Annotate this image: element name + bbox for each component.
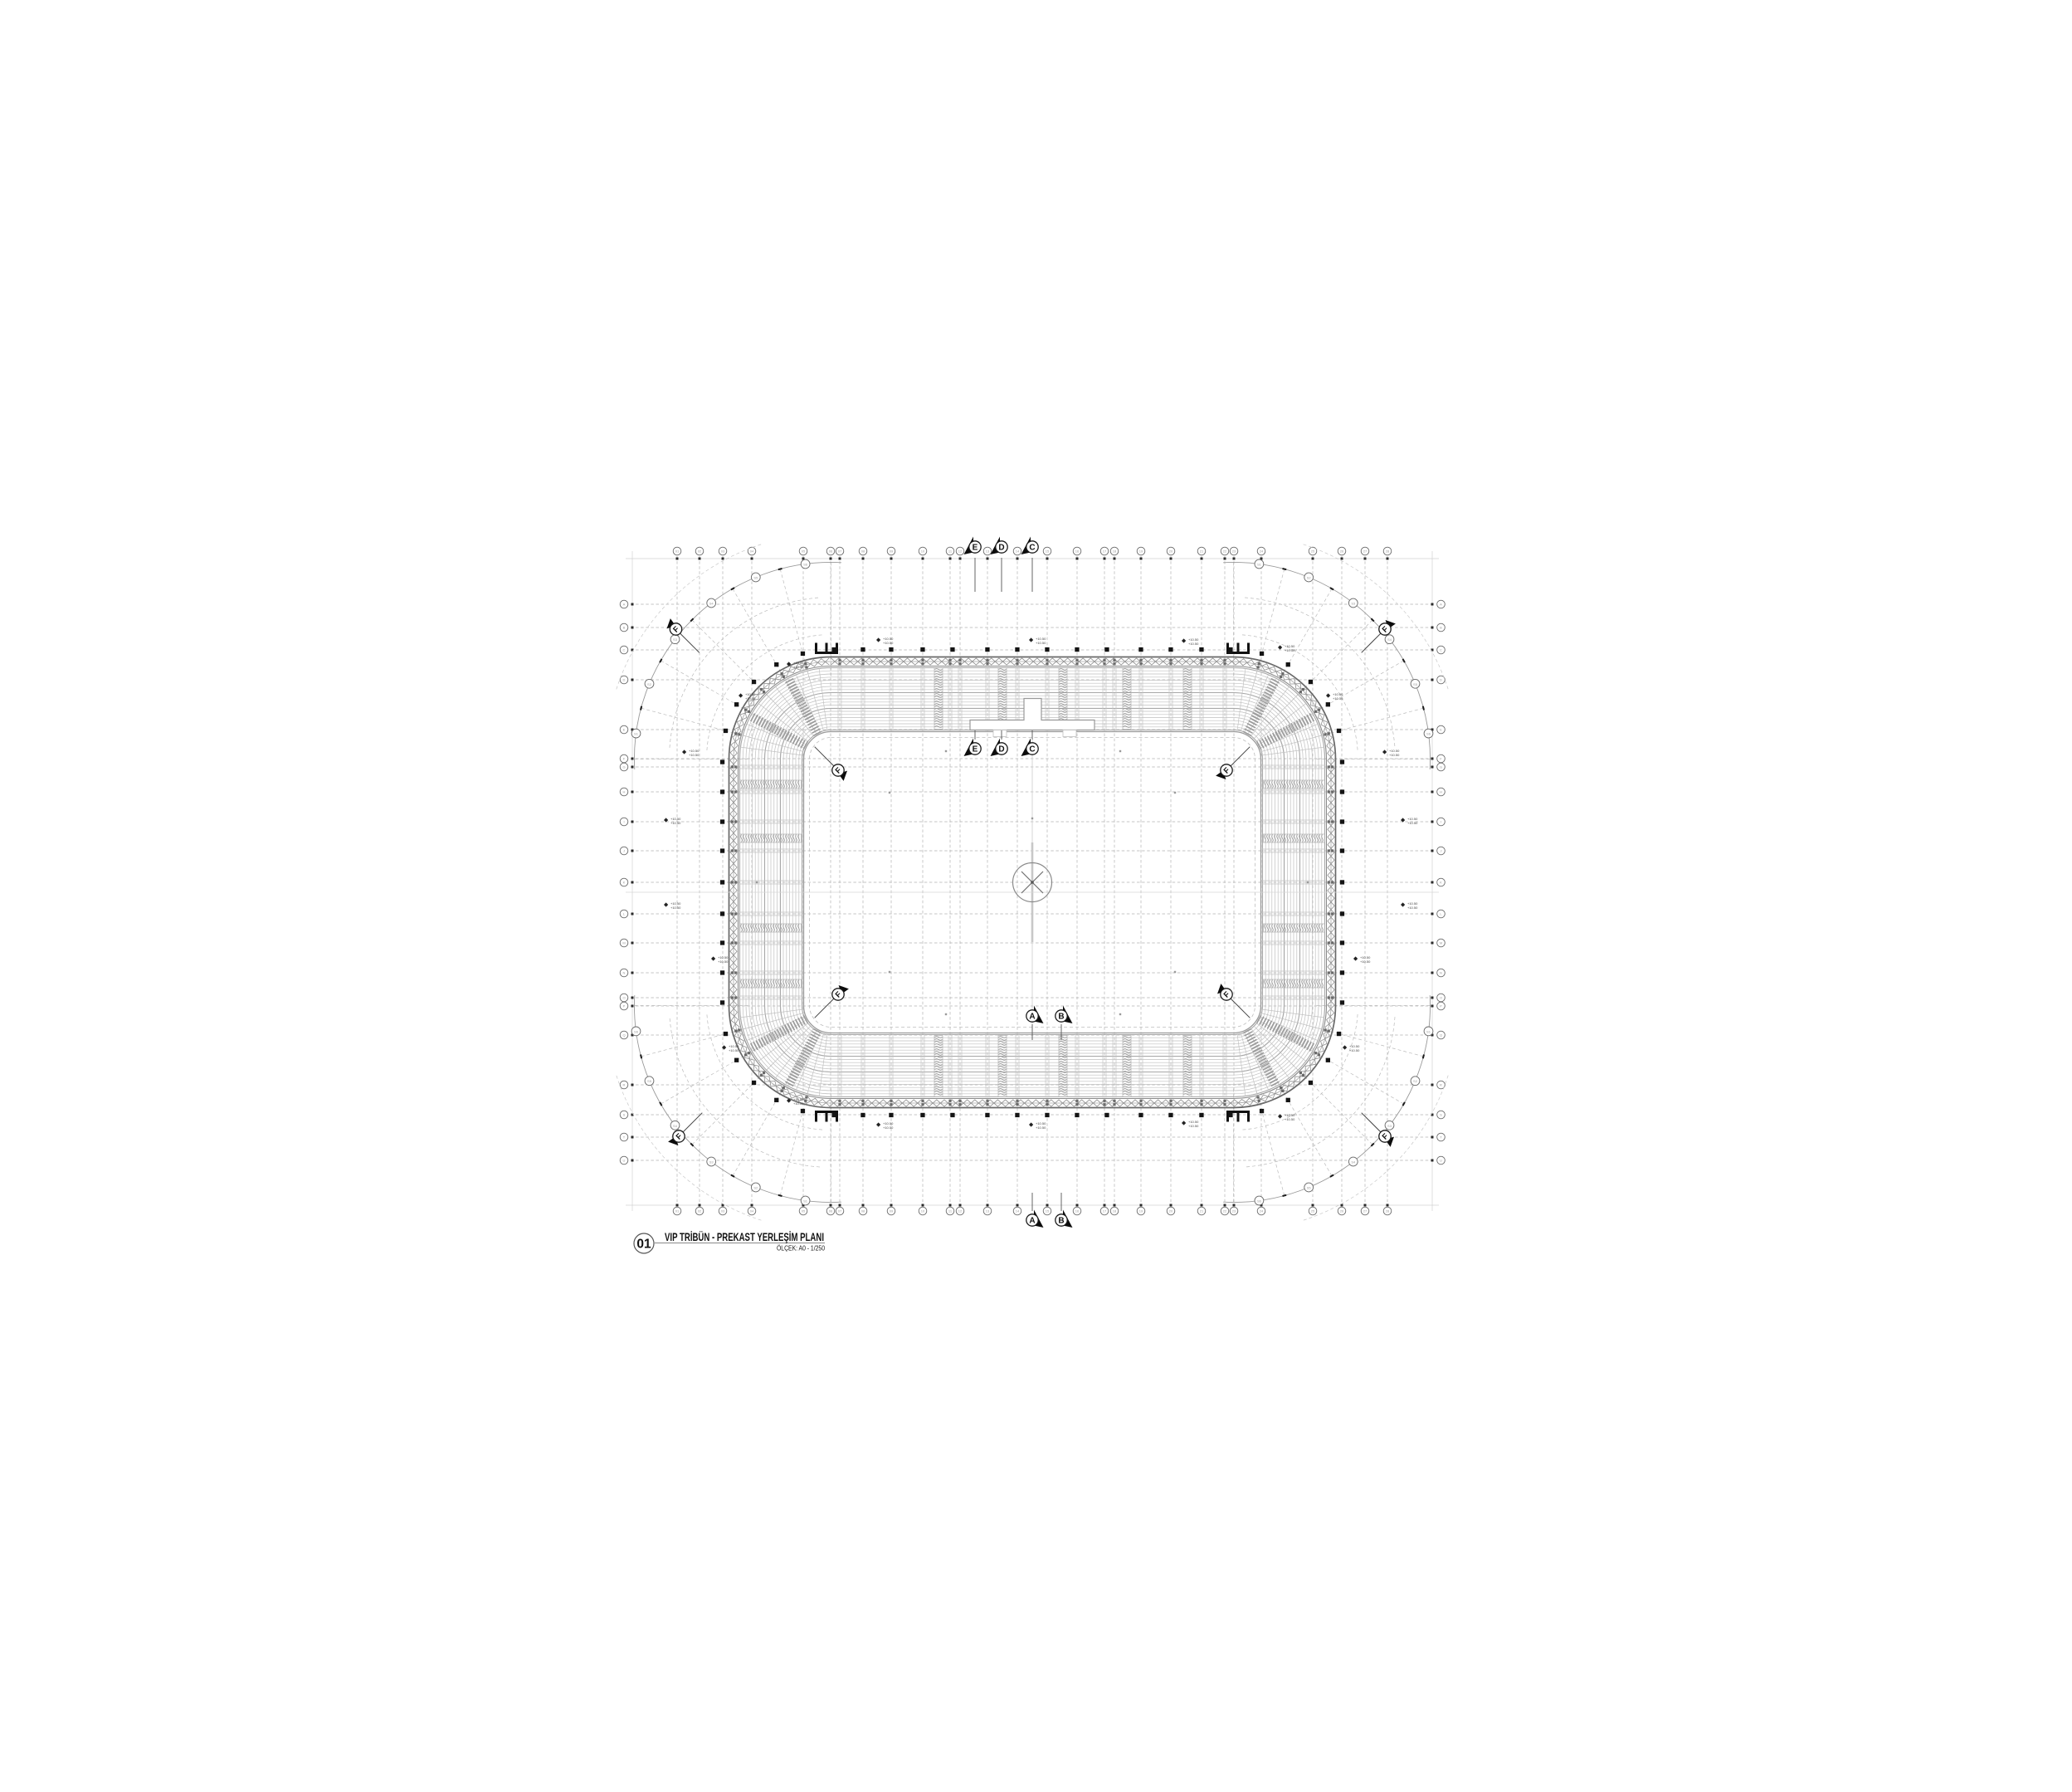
- svg-text:09: 09: [890, 549, 894, 554]
- svg-text:26: 26: [1340, 549, 1344, 554]
- svg-text:+10.50: +10.50: [670, 906, 681, 910]
- svg-text:R: R: [623, 1083, 626, 1087]
- svg-text:C: C: [1440, 648, 1442, 652]
- svg-text:+10.50: +10.50: [883, 641, 894, 645]
- svg-text:25: 25: [1311, 1209, 1315, 1213]
- svg-text:13: 13: [986, 549, 990, 554]
- svg-text:18: 18: [1113, 1209, 1117, 1213]
- svg-text:S: S: [1440, 1113, 1442, 1117]
- svg-text:M: M: [1440, 941, 1442, 945]
- svg-text:+10.50: +10.50: [718, 959, 729, 964]
- svg-text:H: H: [1440, 790, 1442, 794]
- svg-text:27: 27: [1363, 549, 1368, 554]
- svg-text:03: 03: [721, 1209, 725, 1213]
- svg-text:S1: S1: [803, 1199, 808, 1204]
- svg-text:S3: S3: [709, 1160, 714, 1165]
- svg-text:S5: S5: [753, 576, 758, 580]
- svg-text:S4: S4: [673, 1124, 678, 1128]
- svg-text:O: O: [622, 996, 625, 1000]
- svg-text:E: E: [623, 728, 626, 732]
- svg-text:02: 02: [698, 1209, 702, 1213]
- svg-text:07: 07: [838, 1209, 842, 1213]
- svg-text:+10.50: +10.50: [670, 821, 681, 825]
- svg-text:A: A: [623, 603, 626, 607]
- svg-text:07: 07: [838, 549, 842, 554]
- svg-text:G: G: [622, 765, 625, 769]
- svg-text:S5: S5: [647, 1079, 652, 1083]
- svg-text:14: 14: [1016, 549, 1020, 554]
- svg-text:28: 28: [1386, 1209, 1390, 1213]
- svg-text:J: J: [1441, 849, 1442, 853]
- svg-text:19: 19: [1139, 1209, 1143, 1213]
- svg-text:12: 12: [958, 1209, 963, 1213]
- svg-text:+10.50: +10.50: [1349, 1048, 1360, 1052]
- svg-text:06: 06: [829, 1209, 833, 1213]
- svg-text:A: A: [1440, 603, 1442, 607]
- svg-text:+10.50: +10.50: [1407, 906, 1418, 910]
- svg-text:P: P: [623, 1004, 626, 1008]
- svg-text:20: 20: [1169, 1209, 1173, 1213]
- svg-text:+10.50: +10.50: [883, 1125, 894, 1130]
- svg-text:+10.50: +10.50: [1285, 648, 1295, 652]
- svg-text:S3: S3: [1351, 602, 1356, 606]
- svg-text:+10.50: +10.50: [745, 696, 756, 701]
- svg-text:R: R: [1440, 1083, 1442, 1087]
- svg-text:+10.50: +10.50: [1389, 753, 1400, 757]
- svg-text:C: C: [1029, 544, 1035, 553]
- svg-text:ÖLÇEK: A0 - 1/250: ÖLÇEK: A0 - 1/250: [777, 1244, 825, 1252]
- svg-text:O: O: [1440, 996, 1442, 1000]
- svg-text:15: 15: [1046, 549, 1050, 554]
- svg-text:22: 22: [1223, 1209, 1227, 1213]
- svg-text:10: 10: [921, 549, 925, 554]
- svg-text:01: 01: [675, 1209, 680, 1213]
- svg-text:J: J: [623, 849, 625, 853]
- svg-text:N: N: [623, 971, 626, 975]
- svg-text:25: 25: [1311, 549, 1315, 554]
- svg-text:S2: S2: [647, 682, 652, 686]
- svg-text:S6: S6: [1257, 1199, 1262, 1204]
- svg-text:S2: S2: [753, 1186, 758, 1190]
- svg-text:S6: S6: [634, 1029, 639, 1033]
- svg-text:21: 21: [1200, 1209, 1204, 1213]
- svg-text:23: 23: [1232, 1209, 1236, 1213]
- svg-text:A: A: [1029, 1217, 1035, 1226]
- svg-text:08: 08: [861, 1209, 865, 1213]
- svg-text:16: 16: [1075, 1209, 1080, 1213]
- svg-text:14: 14: [1016, 1209, 1020, 1213]
- svg-text:04: 04: [750, 1209, 754, 1213]
- svg-text:M: M: [622, 941, 625, 945]
- svg-text:06: 06: [829, 549, 833, 554]
- svg-text:04: 04: [750, 549, 754, 554]
- svg-text:09: 09: [890, 1209, 894, 1213]
- svg-text:B: B: [1058, 1217, 1064, 1226]
- svg-text:S2: S2: [1413, 1079, 1418, 1083]
- svg-text:+10.50: +10.50: [793, 1101, 804, 1106]
- svg-text:A: A: [1029, 1013, 1035, 1022]
- svg-text:22: 22: [1223, 549, 1227, 554]
- svg-text:Q: Q: [1440, 1033, 1442, 1038]
- svg-text:24: 24: [1260, 1209, 1264, 1213]
- svg-text:12: 12: [958, 549, 963, 554]
- svg-text:02: 02: [698, 549, 702, 554]
- svg-text:27: 27: [1363, 1209, 1368, 1213]
- svg-text:S6: S6: [803, 563, 808, 567]
- svg-text:21: 21: [1200, 549, 1204, 554]
- svg-text:G: G: [1440, 765, 1442, 769]
- svg-text:K: K: [623, 881, 626, 885]
- svg-text:Q: Q: [622, 1033, 625, 1038]
- svg-text:D: D: [623, 678, 626, 682]
- svg-text:13: 13: [986, 1209, 990, 1213]
- svg-text:23: 23: [1232, 549, 1236, 554]
- svg-text:01: 01: [675, 549, 680, 554]
- svg-text:10: 10: [921, 1209, 925, 1213]
- svg-text:E: E: [1440, 728, 1442, 732]
- svg-text:S4: S4: [709, 602, 714, 606]
- svg-text:C: C: [1029, 745, 1035, 754]
- svg-text:S3: S3: [1387, 1124, 1392, 1128]
- svg-text:+10.50: +10.50: [1188, 1124, 1199, 1128]
- svg-text:B: B: [1440, 626, 1442, 630]
- svg-text:P: P: [1440, 1004, 1442, 1008]
- svg-text:26: 26: [1340, 1209, 1344, 1213]
- svg-text:B: B: [623, 626, 626, 630]
- svg-text:S2: S2: [1307, 576, 1312, 580]
- svg-text:+10.50: +10.50: [793, 665, 804, 669]
- svg-text:+10.50: +10.50: [1188, 642, 1199, 646]
- svg-text:18: 18: [1113, 549, 1117, 554]
- svg-text:05: 05: [802, 549, 806, 554]
- svg-text:+10.50: +10.50: [1360, 959, 1371, 964]
- svg-text:K: K: [1440, 881, 1442, 885]
- svg-text:S4: S4: [1351, 1160, 1356, 1165]
- svg-text:C: C: [623, 648, 626, 652]
- svg-text:03: 03: [721, 549, 725, 554]
- svg-text:S1: S1: [1257, 563, 1262, 567]
- svg-text:08: 08: [861, 549, 865, 554]
- svg-text:S5: S5: [1413, 682, 1418, 686]
- svg-text:+10.50: +10.50: [1036, 641, 1046, 645]
- svg-text:16: 16: [1075, 549, 1080, 554]
- svg-text:+10.50: +10.50: [1285, 1117, 1295, 1121]
- svg-text:17: 17: [1103, 1209, 1107, 1213]
- svg-text:B: B: [1058, 1013, 1064, 1022]
- svg-text:S1: S1: [634, 732, 639, 736]
- svg-text:17: 17: [1103, 549, 1107, 554]
- svg-text:D: D: [1440, 678, 1442, 682]
- svg-text:+10.50: +10.50: [729, 1048, 739, 1052]
- svg-text:S5: S5: [1307, 1186, 1312, 1190]
- svg-text:19: 19: [1139, 549, 1143, 554]
- svg-text:S3: S3: [673, 637, 678, 642]
- svg-text:15: 15: [1046, 1209, 1050, 1213]
- svg-text:24: 24: [1260, 549, 1264, 554]
- svg-text:D: D: [998, 544, 1004, 553]
- svg-text:E: E: [973, 544, 978, 553]
- svg-text:S: S: [623, 1113, 626, 1117]
- svg-text:S1: S1: [1426, 1029, 1431, 1033]
- svg-text:+10.50: +10.50: [1407, 821, 1418, 825]
- svg-text:N: N: [1440, 971, 1442, 975]
- svg-text:D: D: [998, 745, 1004, 754]
- svg-text:I: I: [623, 820, 624, 824]
- svg-text:+10.50: +10.50: [1036, 1125, 1046, 1130]
- svg-text:20: 20: [1169, 549, 1173, 554]
- svg-text:+10.50: +10.50: [1333, 696, 1343, 701]
- svg-text:28: 28: [1386, 549, 1390, 554]
- svg-text:S4: S4: [1387, 637, 1392, 642]
- svg-text:U: U: [623, 1159, 626, 1163]
- svg-text:05: 05: [802, 1209, 806, 1213]
- svg-text:+10.50: +10.50: [689, 753, 700, 757]
- svg-text:01: 01: [636, 1238, 651, 1252]
- svg-text:E: E: [973, 745, 978, 754]
- svg-text:S6: S6: [1426, 732, 1431, 736]
- svg-text:H: H: [623, 790, 626, 794]
- svg-text:U: U: [1440, 1159, 1442, 1163]
- svg-text:I: I: [1441, 820, 1441, 824]
- svg-text:VIP TRİBÜN - PREKAST YERLEŞİM: VIP TRİBÜN - PREKAST YERLEŞİM PLANI: [665, 1230, 824, 1243]
